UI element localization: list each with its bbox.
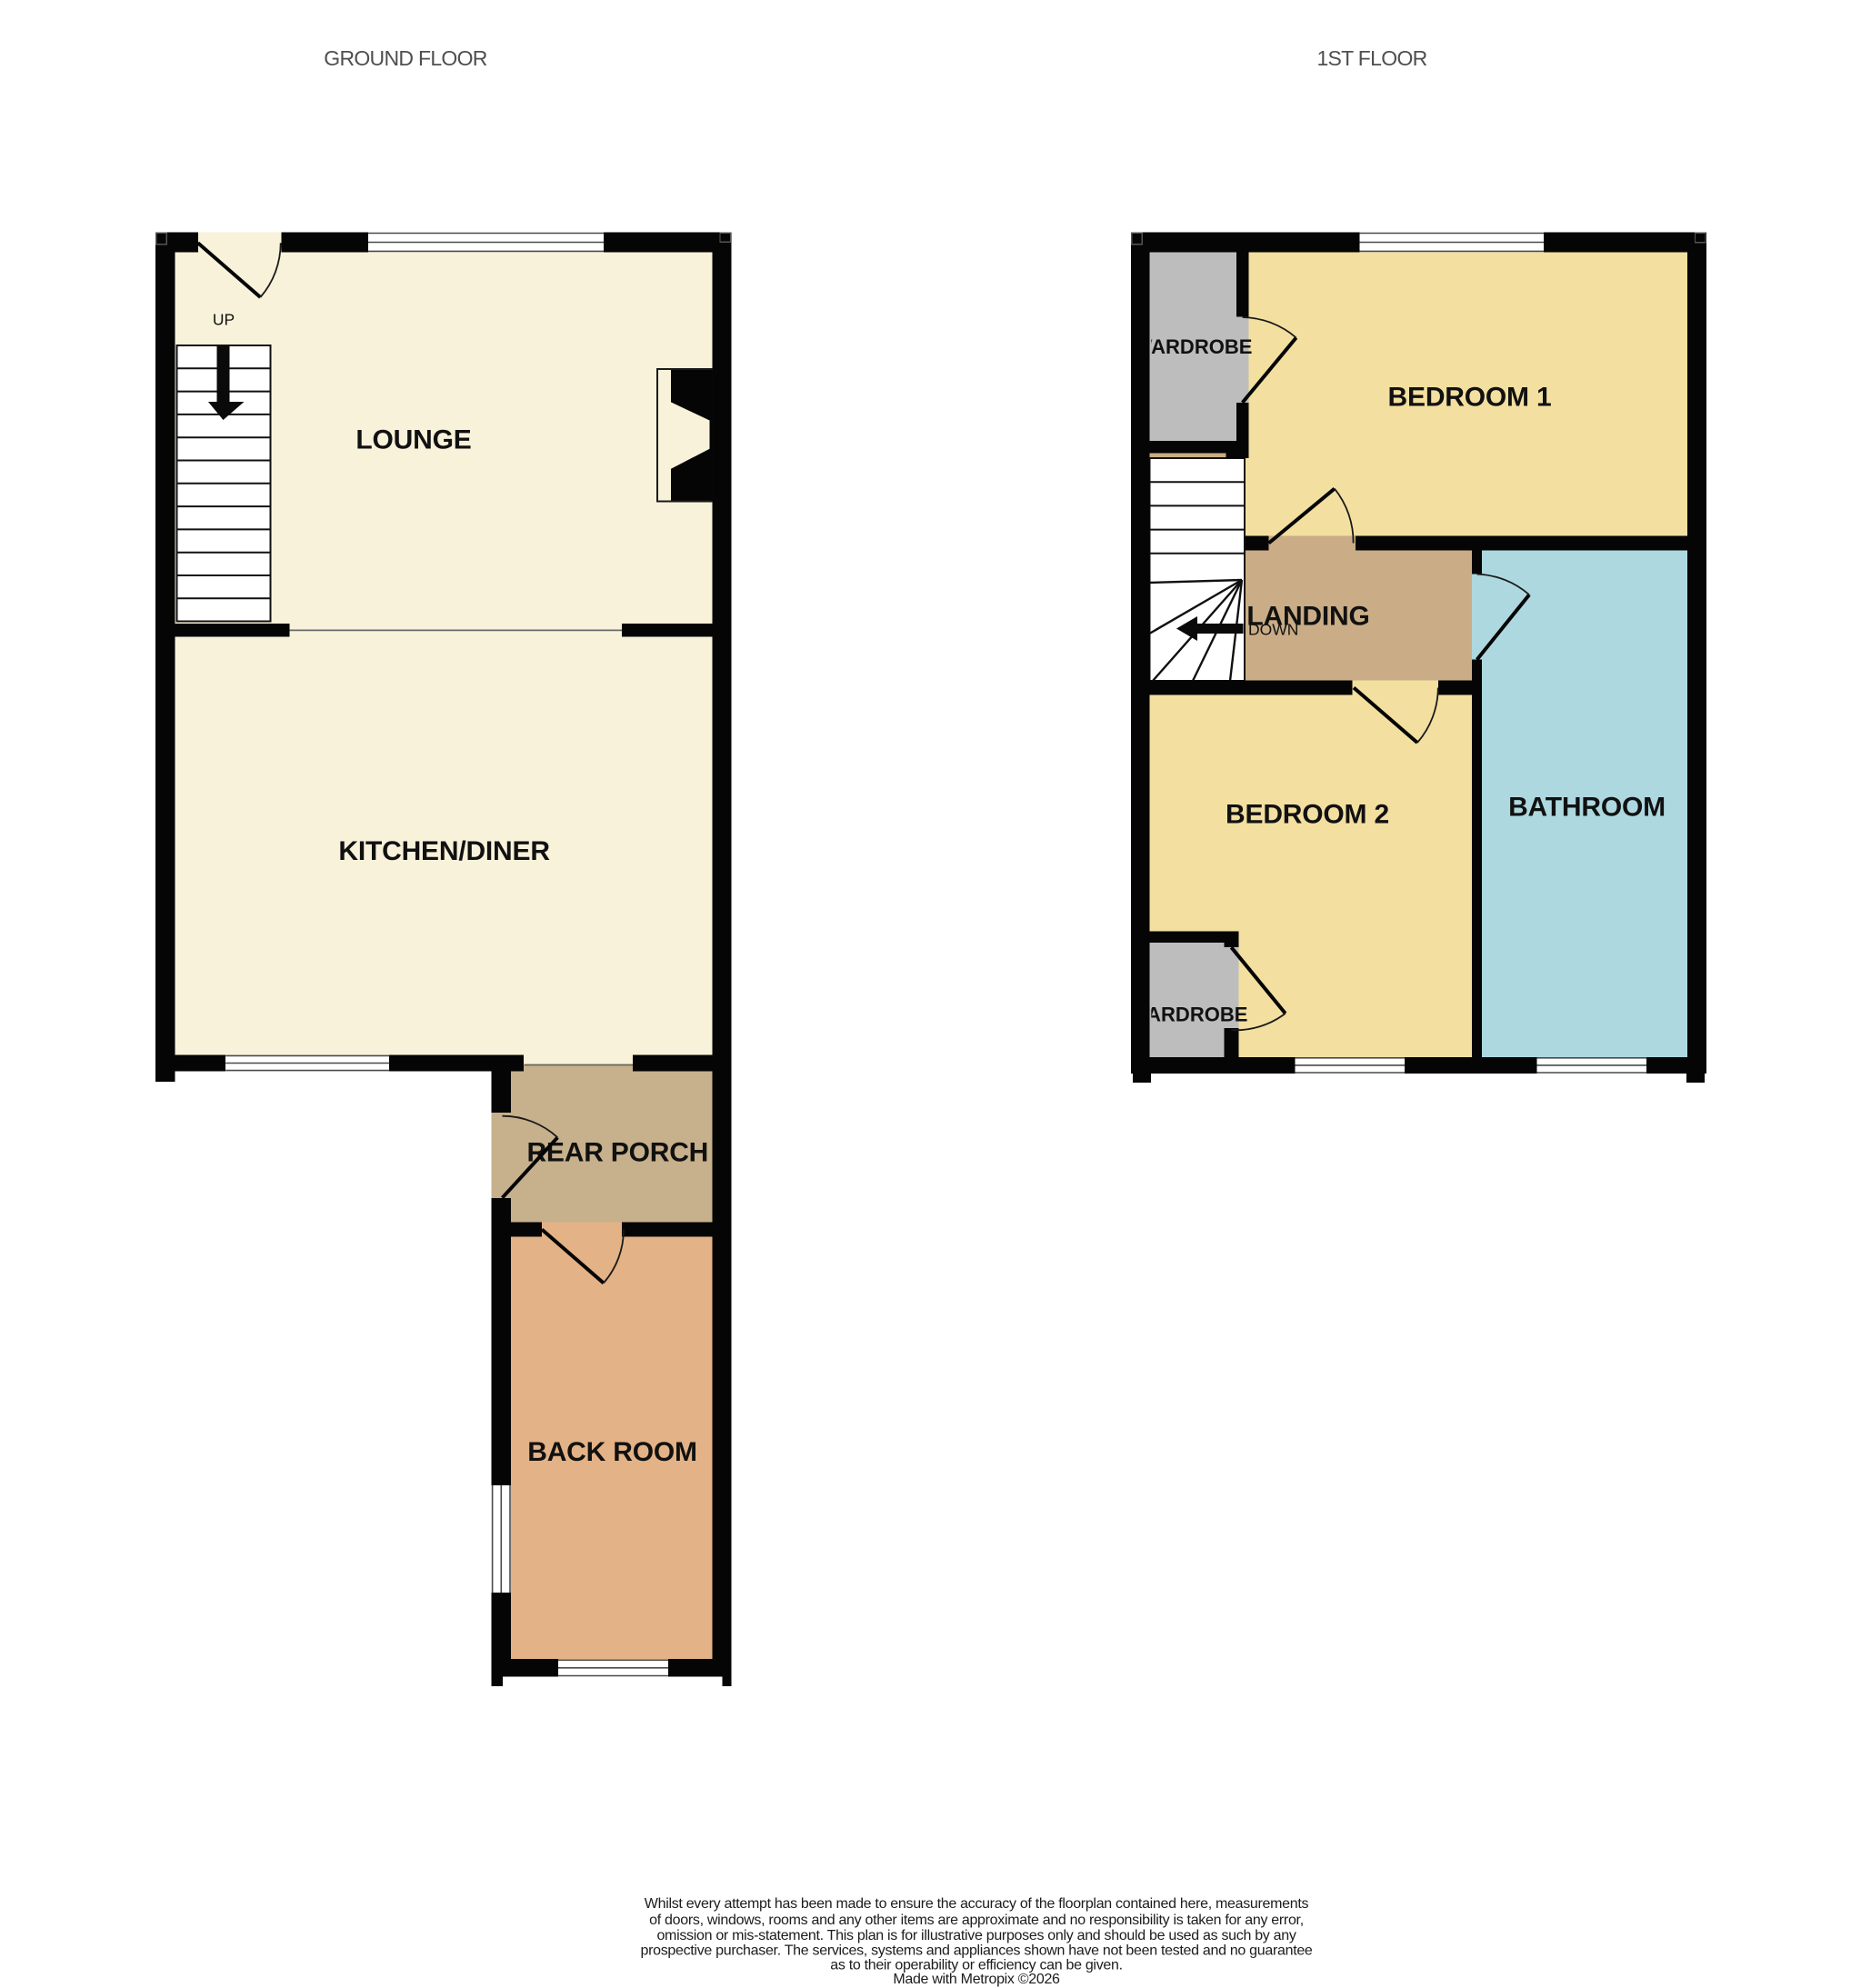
svg-text:Whilst every attempt has been: Whilst every attempt has been made to en… [645,1896,1309,1912]
svg-text:1ST FLOOR: 1ST FLOOR [1316,46,1426,70]
svg-text:DOWN: DOWN [1248,620,1298,638]
svg-text:UP: UP [213,311,235,329]
svg-text:BATHROOM: BATHROOM [1508,793,1666,823]
svg-text:of doors, windows, rooms and a: of doors, windows, rooms and any other i… [649,1913,1304,1928]
svg-text:BEDROOM 1: BEDROOM 1 [1388,383,1552,413]
svg-text:Made with Metropix ©2026: Made with Metropix ©2026 [893,1972,1060,1987]
svg-text:GROUND FLOOR: GROUND FLOOR [324,46,487,70]
svg-text:prospective purchaser. The ser: prospective purchaser. The services, sys… [640,1943,1312,1959]
svg-text:KITCHEN/DINER: KITCHEN/DINER [338,836,550,866]
svg-text:BACK ROOM: BACK ROOM [527,1437,697,1467]
svg-text:BEDROOM 2: BEDROOM 2 [1226,799,1389,829]
svg-text:LOUNGE: LOUNGE [355,425,471,455]
svg-text:omission or mis-statement. Thi: omission or mis-statement. This plan is … [656,1928,1296,1943]
svg-text:as to their operability or eff: as to their operability or efficiency ca… [830,1958,1122,1973]
